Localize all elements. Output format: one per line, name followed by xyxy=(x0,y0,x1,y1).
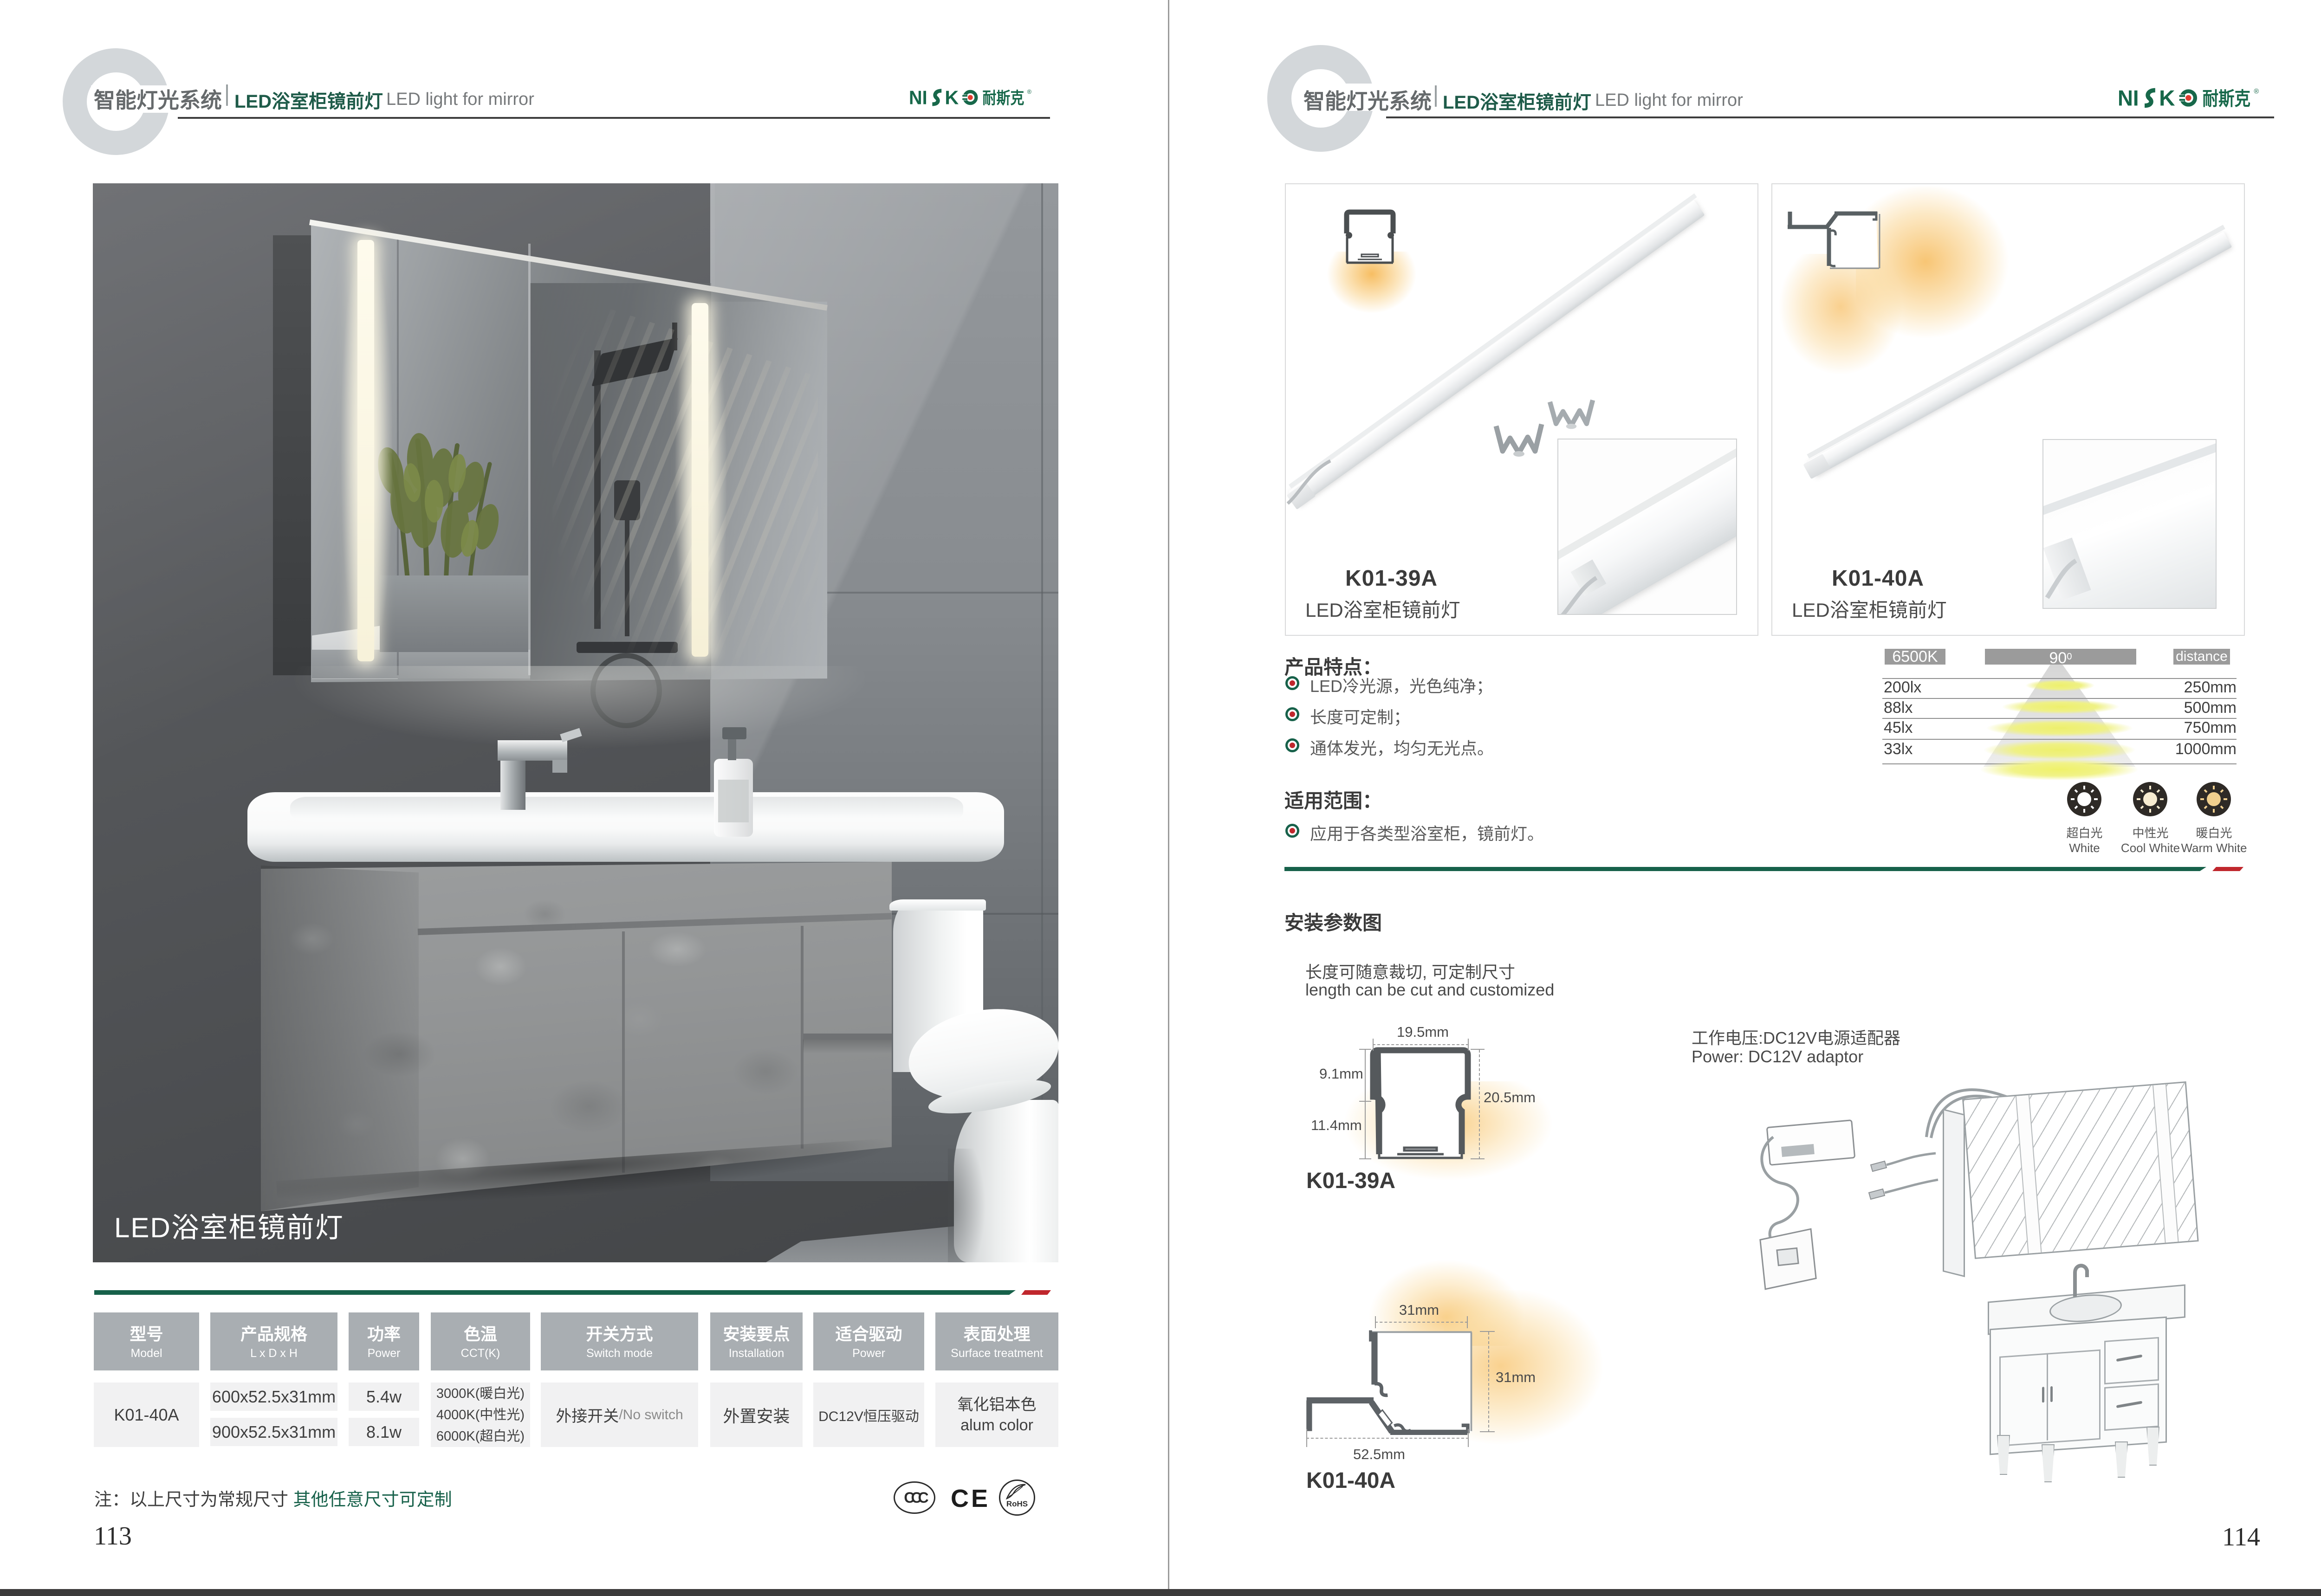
svg-text:®: ® xyxy=(2254,88,2259,96)
svg-text:NI: NI xyxy=(909,89,927,106)
svg-text:耐斯克: 耐斯克 xyxy=(982,90,1024,107)
svg-text:®: ® xyxy=(1027,89,1032,95)
svg-text:K: K xyxy=(2159,88,2175,108)
svg-text:NI: NI xyxy=(2118,88,2139,108)
svg-text:耐斯克: 耐斯克 xyxy=(2202,88,2250,108)
svg-text:K: K xyxy=(945,89,959,106)
